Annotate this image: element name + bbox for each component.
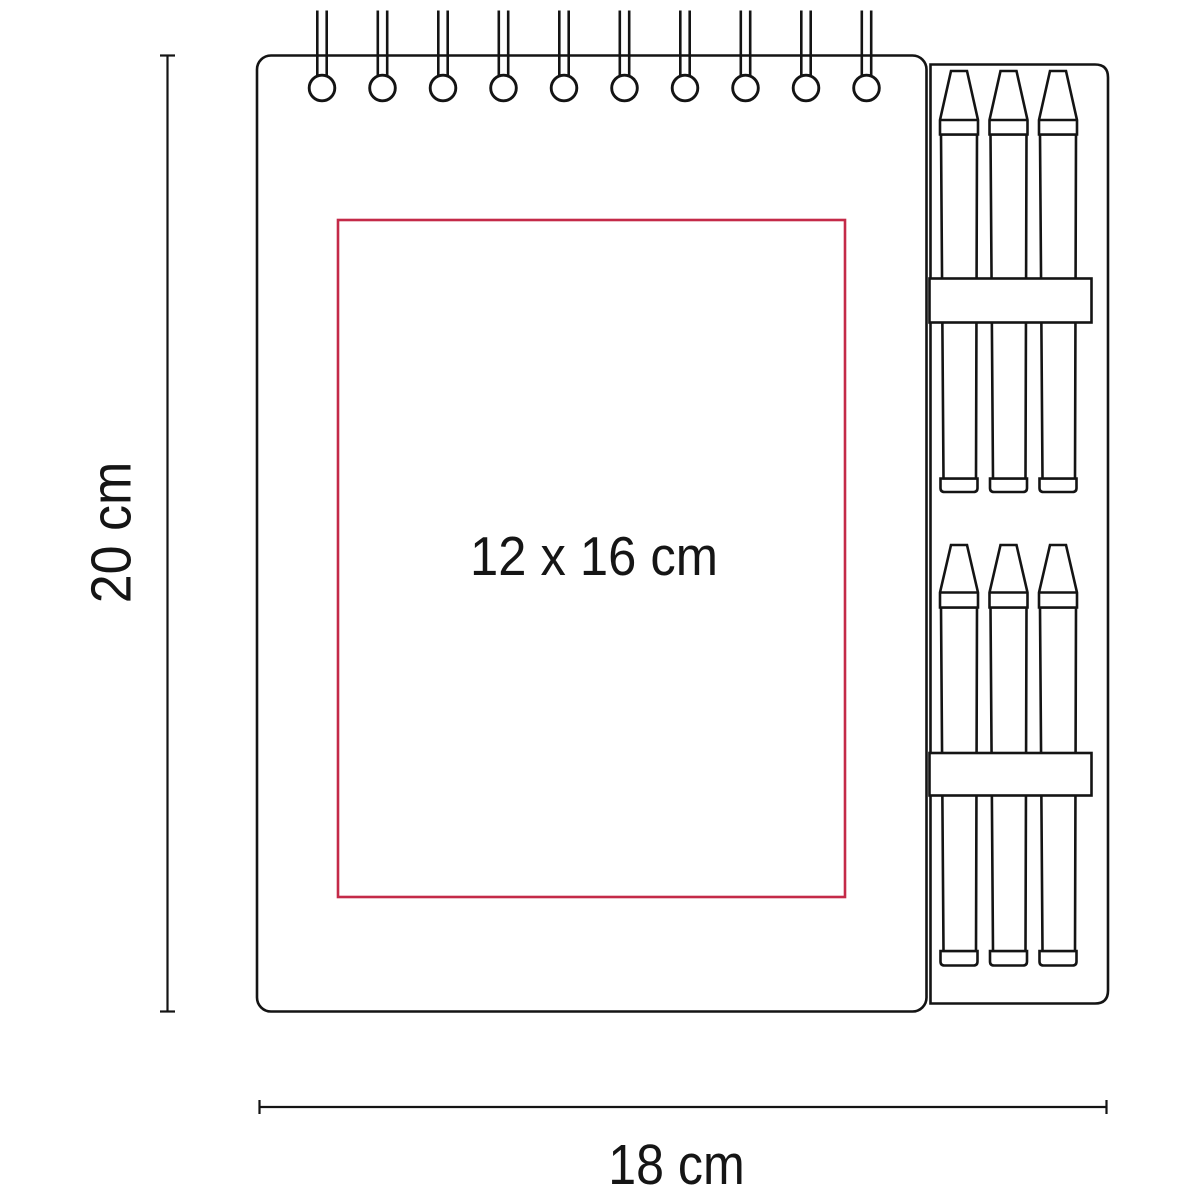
- svg-text:12 x 16 cm: 12 x 16 cm: [470, 525, 718, 587]
- svg-text:18 cm: 18 cm: [608, 1133, 745, 1197]
- svg-text:20 cm: 20 cm: [80, 462, 144, 604]
